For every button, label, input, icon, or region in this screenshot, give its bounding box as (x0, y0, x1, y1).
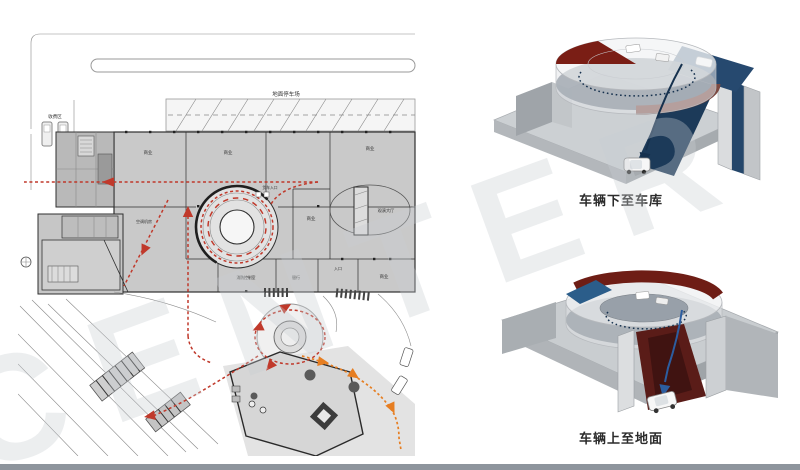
plan-label-freight: 货车入口 (262, 185, 277, 190)
caption-down-to-garage: 车辆下至车库 (556, 190, 686, 209)
right-walls (718, 76, 760, 180)
plan-label-shop-3: 商业 (366, 145, 375, 152)
render-down-drawing (486, 12, 788, 188)
spiral-cylinder (556, 38, 716, 114)
site-plan: 收费区 地面停车场 (18, 4, 418, 456)
lobby-block (21, 216, 128, 292)
plan-label-theater: 观演大厅 (378, 207, 395, 214)
surface-parking: 地面停车场 (166, 90, 415, 131)
caption-up-to-ground: 车辆上至地面 (556, 428, 686, 447)
render-down-to-garage (486, 12, 788, 188)
plan-label-shop-2: 商业 (224, 149, 233, 156)
footer-bar (0, 464, 800, 470)
plan-label-fire: 消防控制室 (237, 275, 256, 280)
plan-label-bank: 银行 (292, 274, 300, 280)
plan-label-toll: 收费区 (48, 113, 62, 120)
plan-label-parking: 地面停车场 (272, 90, 300, 98)
page-canvas: 收费区 地面停车场 (0, 0, 800, 470)
plan-label-shop-4: 商业 (307, 215, 316, 222)
render-up-to-ground (496, 228, 784, 418)
plan-label-hvac: 空调机房 (136, 218, 152, 224)
plan-label-shop-5: 商业 (380, 273, 389, 280)
plan-label-shop-1: 商业 (144, 149, 153, 156)
site-plan-drawing: 收费区 地面停车场 (18, 4, 418, 456)
render-up-drawing (496, 228, 784, 418)
plan-label-entrance: 入口 (334, 266, 342, 271)
parked-cars (391, 347, 414, 395)
